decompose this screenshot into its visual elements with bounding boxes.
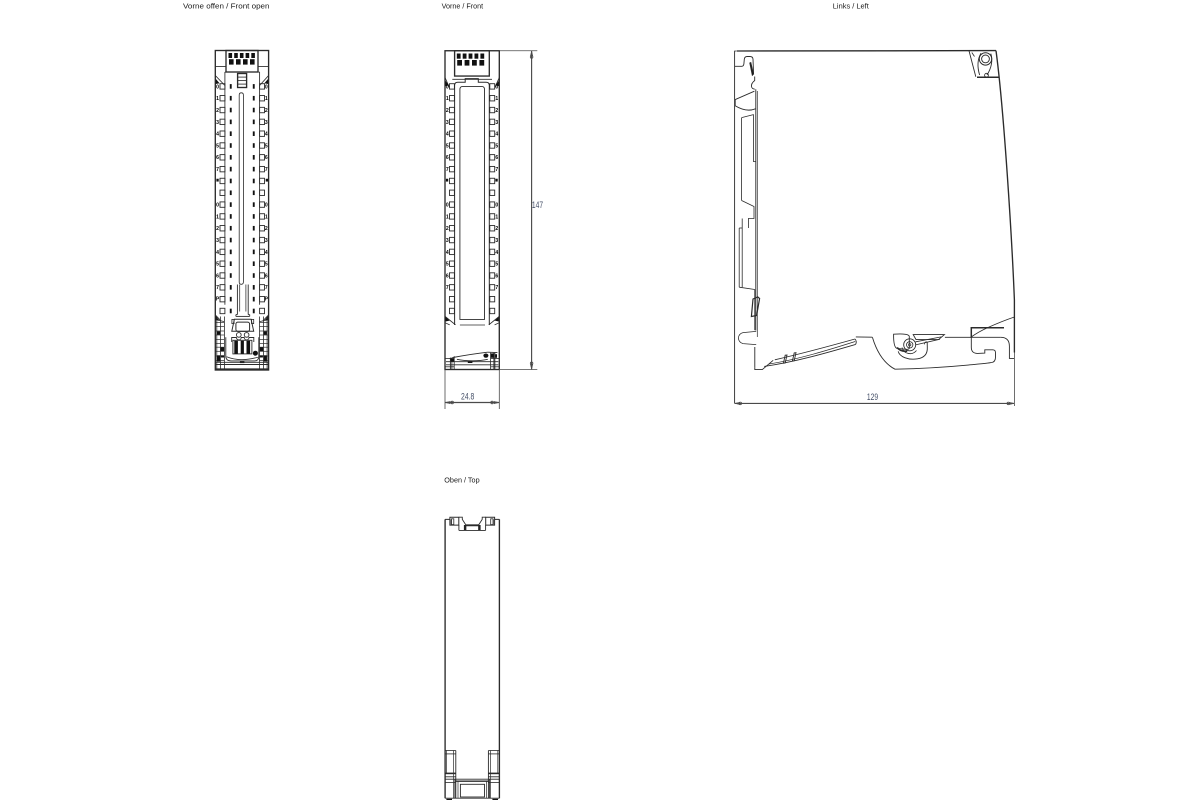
svg-text:0: 0	[495, 203, 498, 209]
svg-text:0: 0	[265, 84, 268, 90]
svg-text:5: 5	[265, 143, 268, 149]
svg-text:2: 2	[446, 108, 449, 114]
svg-text:2: 2	[216, 108, 219, 114]
svg-text:7: 7	[265, 285, 268, 291]
svg-text:4: 4	[216, 250, 219, 256]
svg-text:2: 2	[265, 108, 268, 114]
svg-text:0: 0	[216, 84, 219, 90]
svg-text:1: 1	[216, 96, 219, 102]
svg-text:2: 2	[495, 108, 498, 114]
svg-text:5: 5	[446, 262, 449, 268]
svg-text:1: 1	[495, 96, 498, 102]
svg-text:Oben / Top: Oben / Top	[444, 476, 479, 485]
svg-text:2: 2	[446, 226, 449, 232]
svg-text:6: 6	[265, 155, 268, 161]
svg-text:2: 2	[495, 226, 498, 232]
svg-text:6: 6	[446, 273, 449, 279]
svg-text:5: 5	[216, 262, 219, 268]
svg-text:3: 3	[265, 238, 268, 244]
svg-text:1: 1	[446, 96, 449, 102]
svg-text:7: 7	[216, 285, 219, 291]
svg-text:1: 1	[265, 96, 268, 102]
svg-text:4: 4	[265, 250, 268, 256]
svg-text:7: 7	[216, 167, 219, 173]
svg-text:24.8: 24.8	[461, 391, 474, 401]
svg-text:7: 7	[265, 167, 268, 173]
svg-text:0: 0	[446, 84, 449, 90]
svg-text:Links / Left: Links / Left	[833, 2, 870, 11]
svg-text:0: 0	[446, 203, 449, 209]
svg-text:6: 6	[446, 155, 449, 161]
svg-text:1: 1	[446, 214, 449, 220]
svg-text:6: 6	[216, 155, 219, 161]
svg-text:1: 1	[265, 214, 268, 220]
svg-text:0: 0	[495, 84, 498, 90]
svg-text:3: 3	[265, 120, 268, 126]
svg-text:4: 4	[216, 132, 219, 138]
svg-text:Vorne offen / Front open: Vorne offen / Front open	[183, 2, 270, 11]
svg-text:5: 5	[216, 143, 219, 149]
svg-text:4: 4	[446, 250, 449, 256]
svg-text:147: 147	[532, 200, 543, 210]
svg-text:3: 3	[495, 120, 498, 126]
svg-text:3: 3	[495, 238, 498, 244]
svg-text:7: 7	[495, 167, 498, 173]
svg-text:3: 3	[446, 238, 449, 244]
svg-text:7: 7	[446, 285, 449, 291]
svg-text:4: 4	[495, 250, 498, 256]
svg-text:4: 4	[495, 132, 498, 138]
svg-text:4: 4	[446, 132, 449, 138]
svg-text:129: 129	[867, 392, 878, 402]
svg-text:2: 2	[216, 226, 219, 232]
svg-text:1: 1	[216, 214, 219, 220]
svg-text:7: 7	[495, 285, 498, 291]
svg-text:7: 7	[446, 167, 449, 173]
svg-text:1: 1	[495, 214, 498, 220]
svg-text:3: 3	[216, 238, 219, 244]
svg-text:5: 5	[446, 143, 449, 149]
svg-text:5: 5	[495, 143, 498, 149]
svg-text:6: 6	[265, 273, 268, 279]
svg-text:6: 6	[216, 273, 219, 279]
svg-text:0: 0	[265, 203, 268, 209]
svg-text:0: 0	[216, 203, 219, 209]
svg-text:6: 6	[495, 273, 498, 279]
svg-text:3: 3	[446, 120, 449, 126]
svg-text:4: 4	[265, 132, 268, 138]
svg-text:6: 6	[495, 155, 498, 161]
svg-text:5: 5	[495, 262, 498, 268]
svg-text:Vorne / Front: Vorne / Front	[442, 2, 484, 11]
svg-text:5: 5	[265, 262, 268, 268]
svg-text:3: 3	[216, 120, 219, 126]
svg-text:2: 2	[265, 226, 268, 232]
